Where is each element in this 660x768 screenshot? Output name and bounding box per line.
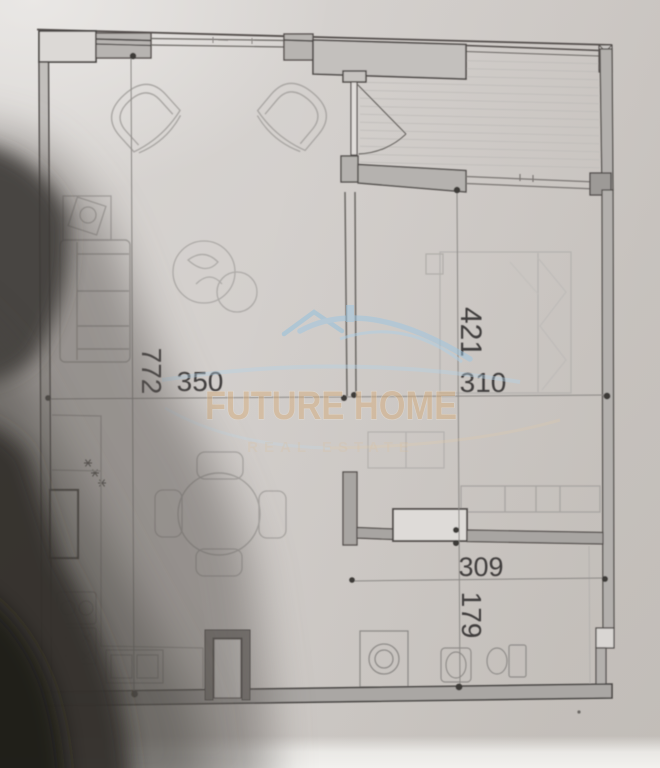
svg-text:FUTURE HOME: FUTURE HOME (205, 384, 457, 428)
svg-text:REAL ESTATE: REAL ESTATE (247, 439, 415, 456)
svg-text:179: 179 (456, 592, 487, 639)
svg-text:310: 310 (460, 367, 507, 398)
svg-text:309: 309 (458, 552, 503, 582)
